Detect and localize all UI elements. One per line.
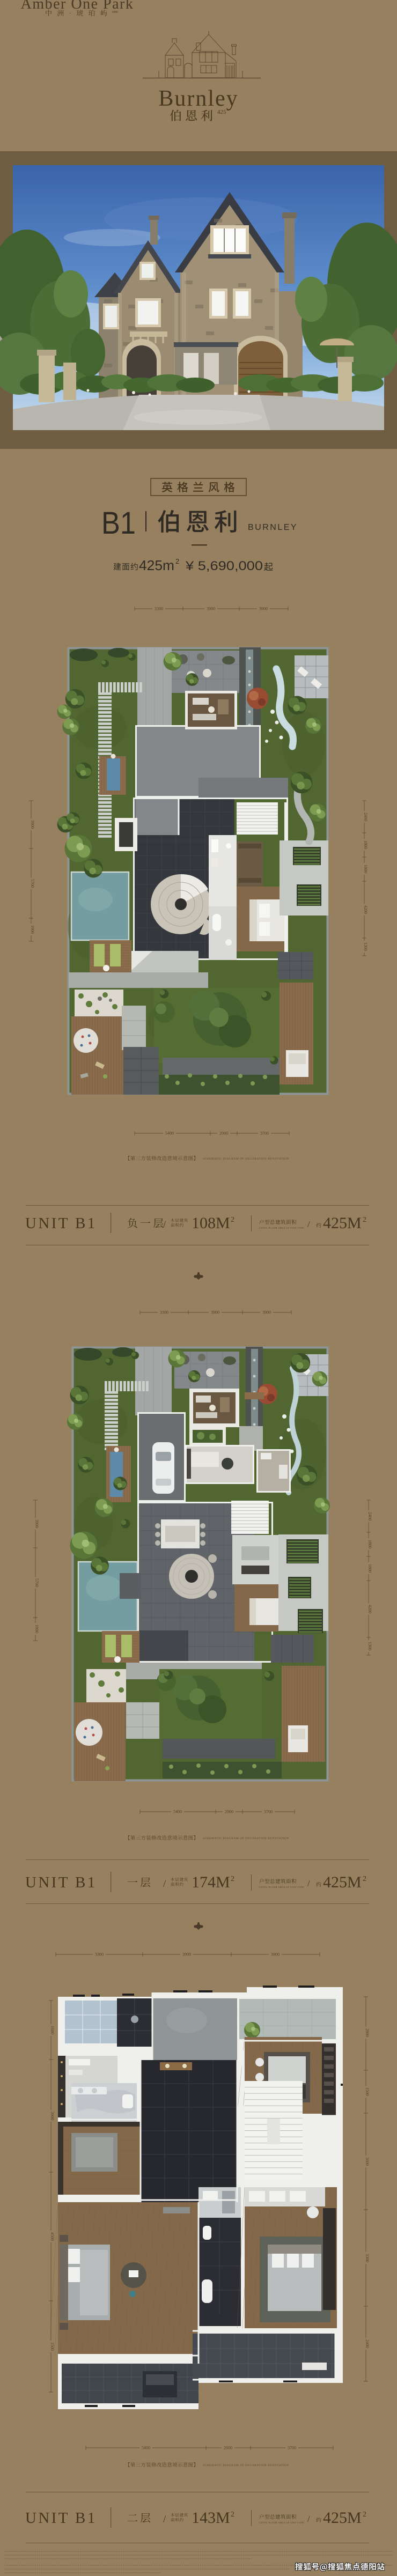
svg-text:5400: 5400: [165, 1131, 174, 1136]
svg-text:/: /: [163, 1878, 166, 1889]
svg-text:2: 2: [363, 1875, 366, 1883]
svg-text:3900: 3900: [50, 2112, 55, 2120]
svg-text:UNIT B1: UNIT B1: [25, 1215, 97, 1232]
svg-text:3900: 3900: [207, 607, 215, 611]
svg-text:5400: 5400: [142, 2446, 150, 2450]
svg-text:B1: B1: [101, 506, 136, 541]
svg-text:2: 2: [363, 2511, 366, 2519]
svg-text:3300: 3300: [155, 607, 163, 611]
svg-text:3900: 3900: [30, 820, 35, 829]
svg-text:143M: 143M: [192, 2509, 230, 2527]
svg-text:1600: 1600: [50, 2026, 55, 2034]
svg-text:4500: 4500: [50, 2232, 55, 2241]
svg-text:174M: 174M: [192, 1873, 230, 1891]
svg-text:/: /: [163, 1219, 166, 1230]
svg-text:UNIT B1: UNIT B1: [25, 2509, 97, 2527]
svg-text:3300: 3300: [95, 1952, 104, 1957]
svg-text:3900: 3900: [34, 1519, 39, 1528]
svg-text:LEVEL FLOOR AREA OF UNIT TYPE: LEVEL FLOOR AREA OF UNIT TYPE: [259, 2521, 304, 2524]
svg-text:2000: 2000: [225, 1810, 233, 1814]
svg-text:UNIT B1: UNIT B1: [25, 1874, 97, 1891]
svg-text:3900: 3900: [182, 1952, 191, 1957]
svg-text:2: 2: [231, 1875, 234, 1883]
svg-text:1880: 1880: [112, 11, 118, 14]
svg-text:2000: 2000: [224, 2446, 232, 2450]
svg-text:3700: 3700: [260, 1131, 269, 1136]
svg-text:1800: 1800: [363, 865, 368, 873]
svg-text:2800: 2800: [365, 2028, 370, 2037]
svg-text:5700: 5700: [34, 1578, 39, 1587]
svg-text:1300: 1300: [363, 942, 368, 951]
svg-text:/: /: [307, 1878, 310, 1888]
svg-text:2: 2: [231, 2511, 234, 2519]
svg-text:3300: 3300: [160, 1310, 168, 1315]
svg-text:SCHEMATIC DIAGRAM OF DECORATIO: SCHEMATIC DIAGRAM OF DECORATION RENOVATI…: [203, 1837, 289, 1840]
svg-text:1800: 1800: [367, 1540, 372, 1548]
svg-text:3900: 3900: [211, 1310, 219, 1315]
svg-text:/: /: [307, 1219, 310, 1229]
svg-text:4200: 4200: [363, 905, 368, 914]
svg-text:2: 2: [231, 1216, 234, 1224]
svg-text:3900: 3900: [271, 1952, 280, 1957]
svg-text:LEVEL FLOOR AREA OF UNIT TYPE: LEVEL FLOOR AREA OF UNIT TYPE: [259, 1886, 304, 1888]
svg-text:1800: 1800: [363, 840, 368, 849]
svg-text:425m: 425m: [139, 557, 174, 573]
svg-text:2000: 2000: [219, 1131, 228, 1136]
svg-text:3900: 3900: [259, 607, 268, 611]
svg-text:SCHEMATIC DIAGRAM OF DECORATIO: SCHEMATIC DIAGRAM OF DECORATION RENOVATI…: [203, 1157, 289, 1161]
svg-text:Burnley: Burnley: [158, 86, 238, 111]
svg-text:3700: 3700: [264, 1810, 273, 1814]
svg-text:SCHEMATIC DIAGRAM OF DECORATIO: SCHEMATIC DIAGRAM OF DECORATION RENOVATI…: [203, 2464, 289, 2467]
svg-text:425: 425: [217, 109, 226, 115]
svg-text:425M: 425M: [323, 1873, 362, 1891]
svg-text:/: /: [307, 2514, 310, 2524]
svg-text:1300: 1300: [367, 1642, 372, 1650]
svg-text:2: 2: [363, 1216, 366, 1224]
svg-text:2400: 2400: [365, 2339, 370, 2348]
svg-text:425M: 425M: [323, 2509, 362, 2527]
svg-text:1900: 1900: [30, 925, 35, 934]
svg-text:3700: 3700: [288, 2446, 296, 2450]
svg-text:3600: 3600: [365, 2157, 370, 2166]
svg-text:108M: 108M: [192, 1214, 230, 1232]
svg-text:3900: 3900: [262, 1310, 271, 1315]
svg-text:1900: 1900: [34, 1625, 39, 1633]
svg-text:5400: 5400: [173, 1810, 182, 1814]
svg-text:BURNLEY: BURNLEY: [248, 523, 298, 532]
svg-text:2400: 2400: [363, 813, 368, 821]
svg-text:2400: 2400: [367, 1512, 372, 1520]
svg-text:¥ 5,690,000: ¥ 5,690,000: [185, 559, 263, 573]
svg-text:3300: 3300: [365, 2254, 370, 2262]
svg-text:LEVEL FLOOR AREA OF UNIT TYPE: LEVEL FLOOR AREA OF UNIT TYPE: [259, 1227, 304, 1229]
svg-text:2: 2: [175, 557, 179, 565]
svg-text:425M: 425M: [323, 1214, 362, 1232]
svg-text:1800: 1800: [367, 1564, 372, 1573]
svg-text:5700: 5700: [30, 879, 35, 888]
svg-text:/: /: [163, 2514, 166, 2525]
svg-text:4200: 4200: [367, 1605, 372, 1613]
svg-text:1500: 1500: [365, 2087, 370, 2096]
svg-text:1500: 1500: [50, 2342, 55, 2351]
